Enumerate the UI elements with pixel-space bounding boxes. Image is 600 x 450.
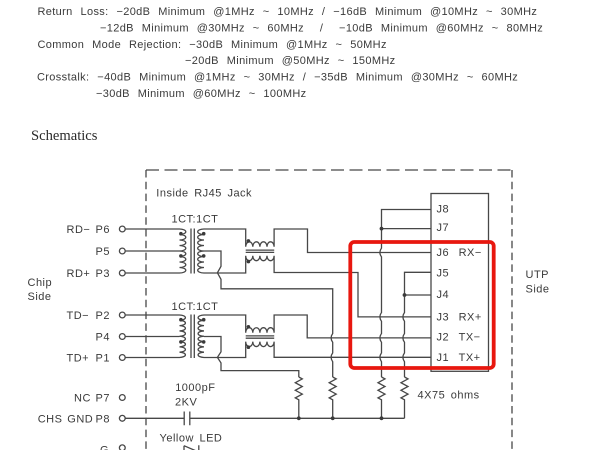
svg-text:Return Loss: −20dB Minimum @1M: Return Loss: −20dB Minimum @1MHz ~ 10MHz… — [38, 6, 538, 18]
svg-text:RD+: RD+ — [67, 268, 91, 280]
svg-text:TD−: TD− — [67, 310, 90, 322]
svg-text:Inside RJ45 Jack: Inside RJ45 Jack — [156, 188, 252, 200]
svg-text:P2: P2 — [96, 310, 110, 322]
svg-text:CHS: CHS — [38, 413, 63, 425]
svg-text:−30dB Minimum @60MHz ~ 100MHz: −30dB Minimum @60MHz ~ 100MHz — [96, 88, 307, 100]
svg-text:Schematics: Schematics — [31, 128, 98, 144]
svg-text:G: G — [100, 445, 109, 450]
svg-text:2KV: 2KV — [175, 396, 197, 408]
svg-text:RD−: RD− — [67, 224, 91, 236]
svg-text:P1: P1 — [96, 353, 110, 365]
svg-text:Crosstalk: −40dB Minimum @1MHz: Crosstalk: −40dB Minimum @1MHz ~ 30MHz /… — [37, 72, 518, 84]
svg-text:P6: P6 — [96, 224, 110, 236]
svg-text:J8: J8 — [437, 204, 450, 216]
svg-text:Yellow LED: Yellow LED — [160, 432, 223, 444]
svg-text:−12dB Minimum @30MHz ~ 60MHz: −12dB Minimum @30MHz ~ 60MHz / −10dB Min… — [100, 22, 543, 34]
svg-text:J5: J5 — [437, 268, 450, 280]
svg-text:−20dB Minimum @50MHz ~ 150MHz: −20dB Minimum @50MHz ~ 150MHz — [185, 55, 396, 67]
svg-text:TX+: TX+ — [459, 352, 481, 364]
svg-text:RX+: RX+ — [459, 312, 482, 324]
svg-text:1CT:1CT: 1CT:1CT — [172, 301, 219, 313]
svg-text:1CT:1CT: 1CT:1CT — [172, 214, 219, 226]
svg-text:1000pF: 1000pF — [175, 382, 215, 394]
svg-text:P3: P3 — [96, 268, 110, 280]
svg-text:Side: Side — [28, 291, 52, 303]
svg-text:NC: NC — [74, 393, 91, 405]
svg-text:J6: J6 — [437, 247, 450, 259]
svg-text:J4: J4 — [437, 289, 450, 301]
svg-text:P7: P7 — [96, 393, 110, 405]
svg-text:P4: P4 — [96, 332, 110, 344]
svg-text:RX−: RX− — [459, 247, 482, 259]
svg-text:Chip: Chip — [28, 277, 53, 289]
svg-text:P5: P5 — [96, 246, 110, 258]
svg-text:Side: Side — [526, 284, 550, 296]
svg-text:TX−: TX− — [459, 332, 481, 344]
svg-text:UTP: UTP — [526, 269, 550, 281]
svg-text:Common Mode Rejection: −30dB M: Common Mode Rejection: −30dB Minimum @1M… — [38, 39, 387, 51]
svg-text:P8: P8 — [96, 413, 110, 425]
svg-text:4X75 ohms: 4X75 ohms — [418, 389, 480, 401]
svg-text:J1: J1 — [437, 352, 450, 364]
svg-text:J7: J7 — [437, 222, 450, 234]
svg-text:J3: J3 — [437, 312, 450, 324]
svg-text:J2: J2 — [437, 332, 450, 344]
svg-text:GND: GND — [67, 413, 93, 425]
svg-text:TD+: TD+ — [67, 353, 90, 365]
